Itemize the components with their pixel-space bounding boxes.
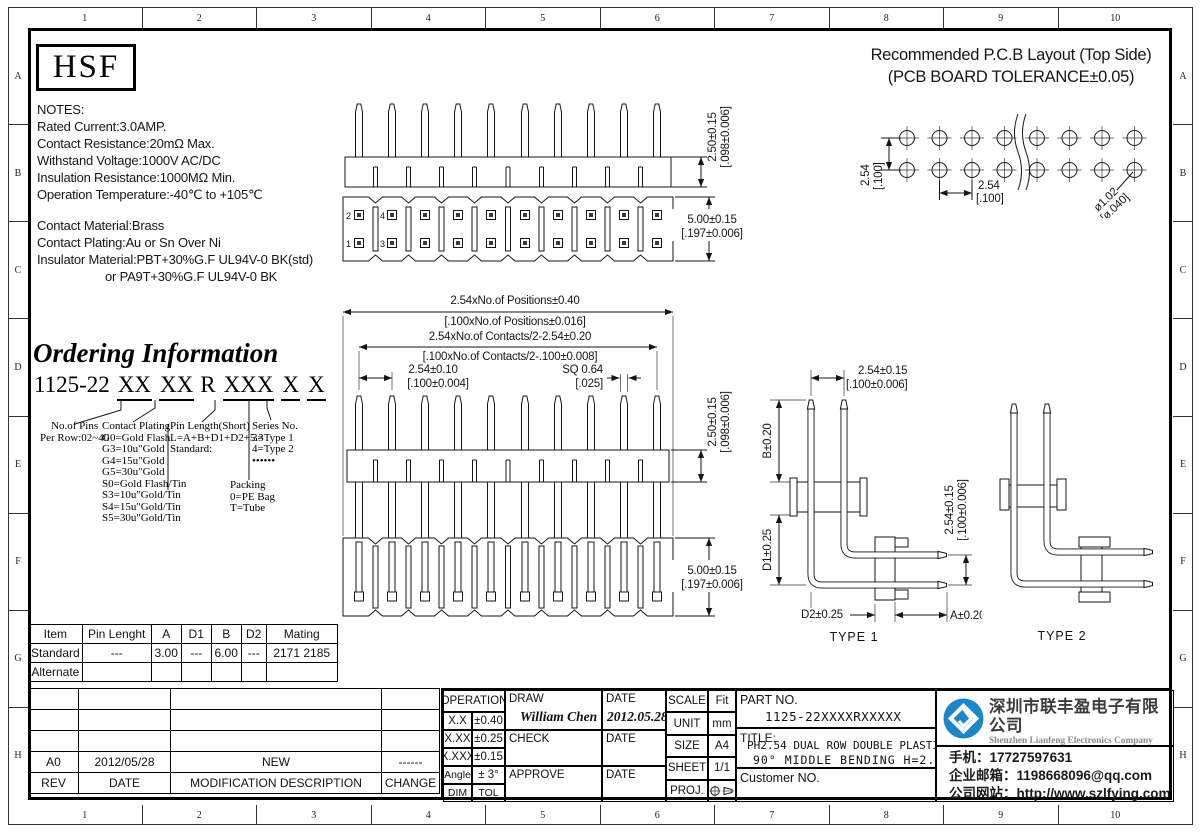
sheet-value: 1/1 xyxy=(708,757,736,779)
zone-label: B xyxy=(8,125,28,222)
col-header: Item xyxy=(29,625,83,644)
pcb-title-line1: Recommended P.C.B Layout (Top Side) xyxy=(850,44,1172,66)
zone-label: 6 xyxy=(601,805,716,825)
table-row xyxy=(29,731,440,752)
svg-text:[.100±0.006]: [.100±0.006] xyxy=(846,379,907,391)
packing-title: Packing xyxy=(230,480,275,492)
col-header: REV xyxy=(29,773,79,794)
company-header-cell: 深圳市联丰盈电子有限公司 Shenzhen Lianfeng Electroni… xyxy=(936,690,1174,746)
zone-label: C xyxy=(8,222,28,319)
zone-label: B xyxy=(1173,125,1193,222)
zone-label: 10 xyxy=(1059,8,1173,28)
zone-label: 7 xyxy=(715,805,830,825)
table-row: Alternate xyxy=(29,663,338,682)
zone-label: F xyxy=(1173,514,1193,611)
type1-b-dim: B±0.20 xyxy=(762,423,774,458)
pitch-dim-mm: 2.54±0.10 xyxy=(408,364,457,376)
hsf-logo: HSF xyxy=(36,44,136,91)
draw-label: DRAW xyxy=(509,693,544,705)
cell xyxy=(82,663,151,682)
connector-front-view: 2.54xNo.of Positions±0.40 [.100xNo.of Po… xyxy=(335,290,755,622)
hsf-logo-text: HSF xyxy=(53,49,120,86)
zone-label: 4 xyxy=(372,805,487,825)
pcb-layout-title: Recommended P.C.B Layout (Top Side) (PCB… xyxy=(850,44,1172,88)
zone-label: 9 xyxy=(944,8,1059,28)
col-header: MODIFICATION DESCRIPTION xyxy=(171,773,382,794)
tail-length-dim: 2.50±0.15 [.098±0.006] xyxy=(707,106,732,167)
zone-label: 3 xyxy=(257,805,372,825)
pin-number-2: 2 xyxy=(346,211,351,221)
pinlength-title: Pin Length(Short) xyxy=(170,421,264,433)
frame-column-labels-bottom: 1 2 3 4 5 6 7 8 9 10 xyxy=(28,805,1172,825)
ordering-title: Ordering Information xyxy=(33,338,278,369)
check-date-cell: DATE xyxy=(602,730,666,766)
plating-option: S5=30u"Gold/Tin xyxy=(102,513,186,525)
note-line: Rated Current:3.0AMP. xyxy=(37,118,347,135)
series-title: Series No. xyxy=(252,421,298,433)
positions-dim-in: [.100xNo.of Positions±0.016] xyxy=(444,316,585,328)
cell: --- xyxy=(181,644,211,663)
note-line: or PA9T+30%G.F UL94V-0 BK xyxy=(37,268,347,285)
table-row xyxy=(29,689,440,710)
revision-table: A0 2012/05/28 NEW ------ REV DATE MODIFI… xyxy=(28,688,440,794)
zone-label: F xyxy=(8,514,28,611)
svg-text:[.197±0.006]: [.197±0.006] xyxy=(681,579,742,591)
table-row xyxy=(29,710,440,731)
unit-label: UNIT xyxy=(666,712,708,734)
series-option: 4=Type 2 xyxy=(252,444,298,456)
part-no-label: PART NO. xyxy=(740,693,798,707)
cell: --- xyxy=(82,644,151,663)
notes-title: NOTES: xyxy=(37,101,347,118)
note-line: Contact Material:Brass xyxy=(37,217,347,234)
tol-label: X.XX xyxy=(443,730,472,748)
customer-no-cell: Customer NO. xyxy=(736,768,936,802)
col-header: CHANGE xyxy=(382,773,440,794)
ordering-pins-title: No.of Pins xyxy=(40,421,109,433)
svg-text:5.00±0.15: 5.00±0.15 xyxy=(687,214,736,226)
svg-text:[.098±0.006]: [.098±0.006] xyxy=(720,391,732,452)
rev-description: NEW xyxy=(171,752,382,773)
tol-value: TOL xyxy=(472,784,505,802)
draw-date: 2012.05.28 xyxy=(607,709,666,725)
tail-length-dim: 2.50±0.15 [.098±0.006] xyxy=(707,391,732,452)
pcb-title-line2: (PCB BOARD TOLERANCE±0.05) xyxy=(850,66,1172,88)
type1-pitch-dim: 2.54±0.15 [.100±0.006] xyxy=(846,365,907,391)
tol-value: ±0.15 xyxy=(472,748,505,766)
ordering-pinlength-col: Pin Length(Short) L=A+B+D1+D2+5.3 Standa… xyxy=(170,421,264,456)
zone-label: C xyxy=(1173,222,1193,319)
type2-view: TYPE 2 xyxy=(962,382,1172,646)
pitch-dim-in: [.100±0.004] xyxy=(407,378,468,390)
sq-dim-in: [.025] xyxy=(575,378,603,390)
tol-label: DIM xyxy=(443,784,472,802)
zone-label: H xyxy=(8,708,28,804)
break-line xyxy=(1023,114,1030,190)
cell: --- xyxy=(241,644,266,663)
zone-label: A xyxy=(8,28,28,125)
table-header-row: Item Pin Lenght A D1 B D2 Mating xyxy=(29,625,338,644)
note-line: Withstand Voltage:1000V AC/DC xyxy=(37,152,347,169)
col-header: D1 xyxy=(181,625,211,644)
pin-number-1: 1 xyxy=(346,239,351,249)
cell: Alternate xyxy=(29,663,83,682)
notes-block: NOTES: Rated Current:3.0AMP. Contact Res… xyxy=(37,101,347,285)
contacts-dim-mm: 2.54xNo.of Contacts/2-2.54±0.20 xyxy=(429,331,592,343)
company-name-cn: 深圳市联丰盈电子有限公司 xyxy=(989,698,1173,736)
frame-column-labels-top: 1 2 3 4 5 6 7 8 9 10 xyxy=(28,8,1172,28)
size-label: SIZE xyxy=(666,735,708,757)
connector-top-views: 2.50±0.15 [.098±0.006] xyxy=(335,95,755,267)
zone-label: 8 xyxy=(830,805,945,825)
draw-cell: DRAW William Chen xyxy=(505,690,602,730)
zone-label: 1 xyxy=(28,8,143,28)
draw-signature: William Chen xyxy=(520,709,597,725)
zone-label: 2 xyxy=(143,805,258,825)
sheet-label: SHEET xyxy=(666,757,708,779)
check-label: CHECK xyxy=(509,733,549,745)
phone-value: 17727597631 xyxy=(990,750,1073,765)
email-label: 企业邮箱： xyxy=(949,768,1017,783)
svg-text:2.54±0.15: 2.54±0.15 xyxy=(944,485,956,534)
sq-dim-mm: SQ 0.64 xyxy=(562,364,604,376)
zone-label: 1 xyxy=(28,805,143,825)
zone-label: 7 xyxy=(715,8,830,28)
zone-label: 6 xyxy=(601,8,716,28)
packing-option: T=Tube xyxy=(230,503,275,515)
zone-label: E xyxy=(8,417,28,514)
cell: 3.00 xyxy=(151,644,181,663)
pcb-col-pitch-dim: 2.54 [.100] xyxy=(976,180,1004,205)
approve-label: APPROVE xyxy=(509,769,565,781)
table-row: Standard --- 3.00 --- 6.00 --- 2171 2185 xyxy=(29,644,338,663)
svg-text:[.100]: [.100] xyxy=(873,162,885,190)
ordering-series-col: Series No. 3=Type 1 4=Type 2 •••••• xyxy=(252,421,298,467)
svg-text:2.54: 2.54 xyxy=(978,180,1000,192)
note-line: Insulator Material:PBT+30%G.F UL94V-0 BK… xyxy=(37,251,347,268)
zone-label: 5 xyxy=(486,8,601,28)
series-more: •••••• xyxy=(252,456,298,468)
col-header: Pin Lenght xyxy=(82,625,151,644)
cell xyxy=(211,663,241,682)
pin-number-4: 4 xyxy=(380,211,385,221)
approve-cell: APPROVE xyxy=(505,766,602,802)
cell xyxy=(266,663,337,682)
zone-label: D xyxy=(8,319,28,416)
pcb-hole-dia-dim: ø1.02 [ø.040] xyxy=(1090,183,1131,218)
zone-label: A xyxy=(1173,28,1193,125)
note-line: Operation Temperature:-40℃ to +105℃ xyxy=(37,186,347,203)
type1-d1-dim: D1±0.25 xyxy=(762,529,774,571)
tol-label: X.XXX xyxy=(443,748,472,766)
svg-text:B±0.20: B±0.20 xyxy=(762,423,774,458)
ordering-packing-col: Packing 0=PE Bag T=Tube xyxy=(230,480,275,515)
contacts-dim-in: [.100xNo.of Contacts/2-.100±0.008] xyxy=(423,351,598,363)
rev-id: A0 xyxy=(29,752,79,773)
svg-text:D1±0.25: D1±0.25 xyxy=(762,529,774,571)
type1-view: 2.54±0.15 [.100±0.006] B±0.20 D1±0.25 D2… xyxy=(742,352,982,646)
svg-text:2.50±0.15: 2.50±0.15 xyxy=(707,112,719,161)
company-name-en: Shenzhen Lianfeng Electronics Company Li… xyxy=(989,736,1173,746)
date-label: DATE xyxy=(606,693,636,705)
pcb-layout-drawing: 2.54 [.100] 2.54 [.100] ø1.02 [ø.040] xyxy=(855,90,1170,218)
col-header: DATE xyxy=(79,773,171,794)
svg-text:[.197±0.006]: [.197±0.006] xyxy=(681,228,742,240)
draw-date-cell: DATE 2012.05.28 xyxy=(602,690,666,730)
tol-value: ±0.40 xyxy=(472,712,505,730)
approve-date-cell: DATE xyxy=(602,766,666,802)
frame-row-labels-right: A B C D E F G H xyxy=(1173,28,1193,804)
note-line: Contact Resistance:20mΩ Max. xyxy=(37,135,347,152)
cell xyxy=(241,663,266,682)
pin-number-3: 3 xyxy=(380,239,385,249)
title-line1: PH2.54 DUAL ROW DOUBLE PLASTIC xyxy=(747,739,936,752)
col-header: Mating xyxy=(266,625,337,644)
note-line: Insulation Resistance:1000MΩ Min. xyxy=(37,169,347,186)
zone-label: 8 xyxy=(830,8,945,28)
type1-label: TYPE 1 xyxy=(829,630,878,644)
svg-text:2.54: 2.54 xyxy=(860,164,872,186)
date-label: DATE xyxy=(606,733,636,745)
proj-symbol-cell xyxy=(708,780,736,802)
col-header: D2 xyxy=(241,625,266,644)
frame-row-labels-left: A B C D E F G H xyxy=(8,28,28,804)
zone-label: 10 xyxy=(1059,805,1173,825)
upper-insulator xyxy=(347,450,669,482)
positions-dim-mm: 2.54xNo.of Positions±0.40 xyxy=(450,295,579,307)
plating-option: S3=10u"Gold/Tin xyxy=(102,490,186,502)
zone-label: 4 xyxy=(372,8,487,28)
side-view-body xyxy=(345,157,671,187)
drawing-sheet: 1 2 3 4 5 6 7 8 9 10 1 2 3 4 5 6 7 8 9 1… xyxy=(0,0,1200,832)
part-no-cell: PART NO. 1125-22XXXXRXXXXX xyxy=(736,690,936,728)
phone-label: 手机： xyxy=(949,750,990,765)
check-cell: CHECK xyxy=(505,730,602,766)
title-block: OPERATION X.X ±0.40 X.XX ±0.25 X.XXX ±0.… xyxy=(441,688,1172,800)
tol-label: Angle xyxy=(443,766,472,784)
date-label: DATE xyxy=(606,769,636,781)
cell: Standard xyxy=(29,644,83,663)
svg-text:2.50±0.15: 2.50±0.15 xyxy=(707,397,719,446)
zone-label: D xyxy=(1173,319,1193,416)
email-value: 1198668096@qq.com xyxy=(1017,768,1153,783)
svg-text:[.100]: [.100] xyxy=(976,193,1004,205)
svg-text:2.54±0.15: 2.54±0.15 xyxy=(858,365,907,377)
note-line: Contact Plating:Au or Sn Over Ni xyxy=(37,234,347,251)
pcb-row-pitch-dim: 2.54 [.100] xyxy=(860,162,885,190)
cell: 2171 2185 xyxy=(266,644,337,663)
pinlength-standard: Standard: xyxy=(170,444,264,456)
break-line xyxy=(1015,114,1022,190)
type1-d2-dim: D2±0.25 xyxy=(801,609,843,621)
tol-value: ± 3° xyxy=(472,766,505,784)
plating-option: G5=30u"Gold xyxy=(102,467,186,479)
size-value: A4 xyxy=(708,735,736,757)
zone-label: 3 xyxy=(257,8,372,28)
customer-no-label: Customer NO. xyxy=(740,771,820,785)
zone-label: G xyxy=(8,611,28,708)
scale-value: Fit xyxy=(708,690,736,712)
ordering-pins-range: Per Row:02~40 xyxy=(40,433,109,445)
tol-value: ±0.25 xyxy=(472,730,505,748)
pin-length-table: Item Pin Lenght A D1 B D2 Mating Standar… xyxy=(28,624,338,682)
svg-text:[.098±0.006]: [.098±0.006] xyxy=(720,106,732,167)
rev-change: ------ xyxy=(382,752,440,773)
rev-date: 2012/05/28 xyxy=(79,752,171,773)
zone-label: 2 xyxy=(143,8,258,28)
projection-symbol-icon xyxy=(709,784,735,798)
title-cell: TITLE: PH2.54 DUAL ROW DOUBLE PLASTIC 90… xyxy=(736,728,936,768)
website-label: 公司网站： xyxy=(949,786,1017,801)
title-line2: 90° MIDDLE BENDING H=2.5 xyxy=(753,753,936,767)
scale-label: SCALE xyxy=(666,690,708,712)
zone-label: G xyxy=(1173,611,1193,708)
company-logo xyxy=(942,697,985,740)
cell xyxy=(181,663,211,682)
website-value: http://www.szlfying.com xyxy=(1017,786,1171,801)
svg-text:5.00±0.15: 5.00±0.15 xyxy=(687,565,736,577)
pin-shafts xyxy=(356,482,661,538)
col-header: A xyxy=(151,625,181,644)
zone-label: 5 xyxy=(486,805,601,825)
zone-label: 9 xyxy=(944,805,1059,825)
operation-header: OPERATION xyxy=(443,690,505,712)
proj-label: PROJ. xyxy=(666,780,708,802)
cell xyxy=(151,663,181,682)
cell: 6.00 xyxy=(211,644,241,663)
type2-label: TYPE 2 xyxy=(1037,629,1086,643)
part-no-value: 1125-22XXXXRXXXXX xyxy=(765,709,901,724)
ordering-pins-col: No.of Pins Per Row:02~40 xyxy=(40,421,109,444)
company-contact-cell: 手机：17727597631 企业邮箱：1198668096@qq.com 公司… xyxy=(936,746,1174,802)
col-header: B xyxy=(211,625,241,644)
zone-label: H xyxy=(1173,708,1193,804)
table-header-row: REV DATE MODIFICATION DESCRIPTION CHANGE xyxy=(29,773,440,794)
unit-value: mm xyxy=(708,712,736,734)
table-row: A0 2012/05/28 NEW ------ xyxy=(29,752,440,773)
zone-label: E xyxy=(1173,417,1193,514)
tol-label: X.X xyxy=(443,712,472,730)
